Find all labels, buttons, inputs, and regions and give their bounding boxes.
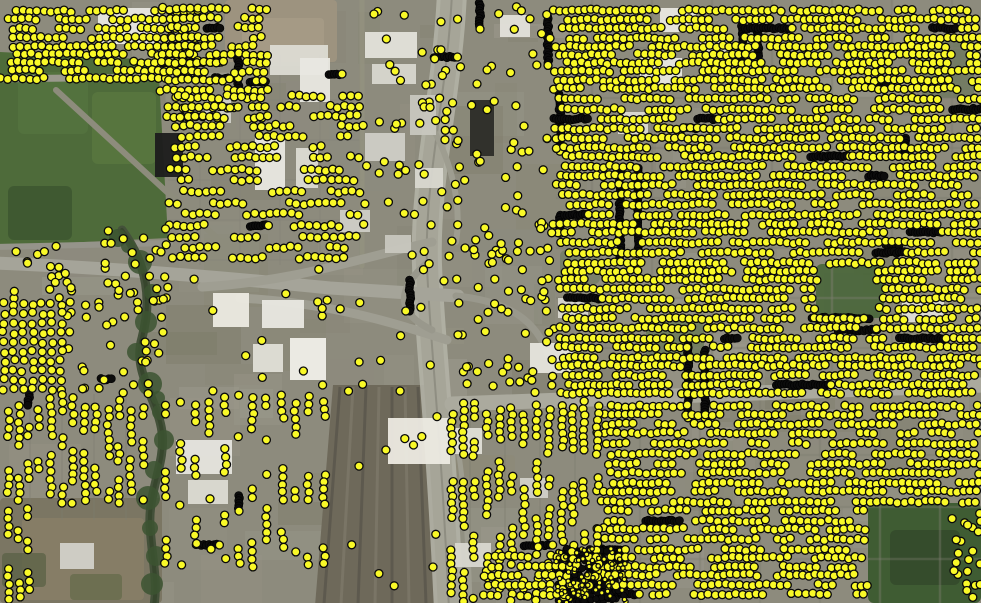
map-viewport — [0, 0, 981, 603]
aerial-map-canvas[interactable] — [0, 0, 981, 603]
